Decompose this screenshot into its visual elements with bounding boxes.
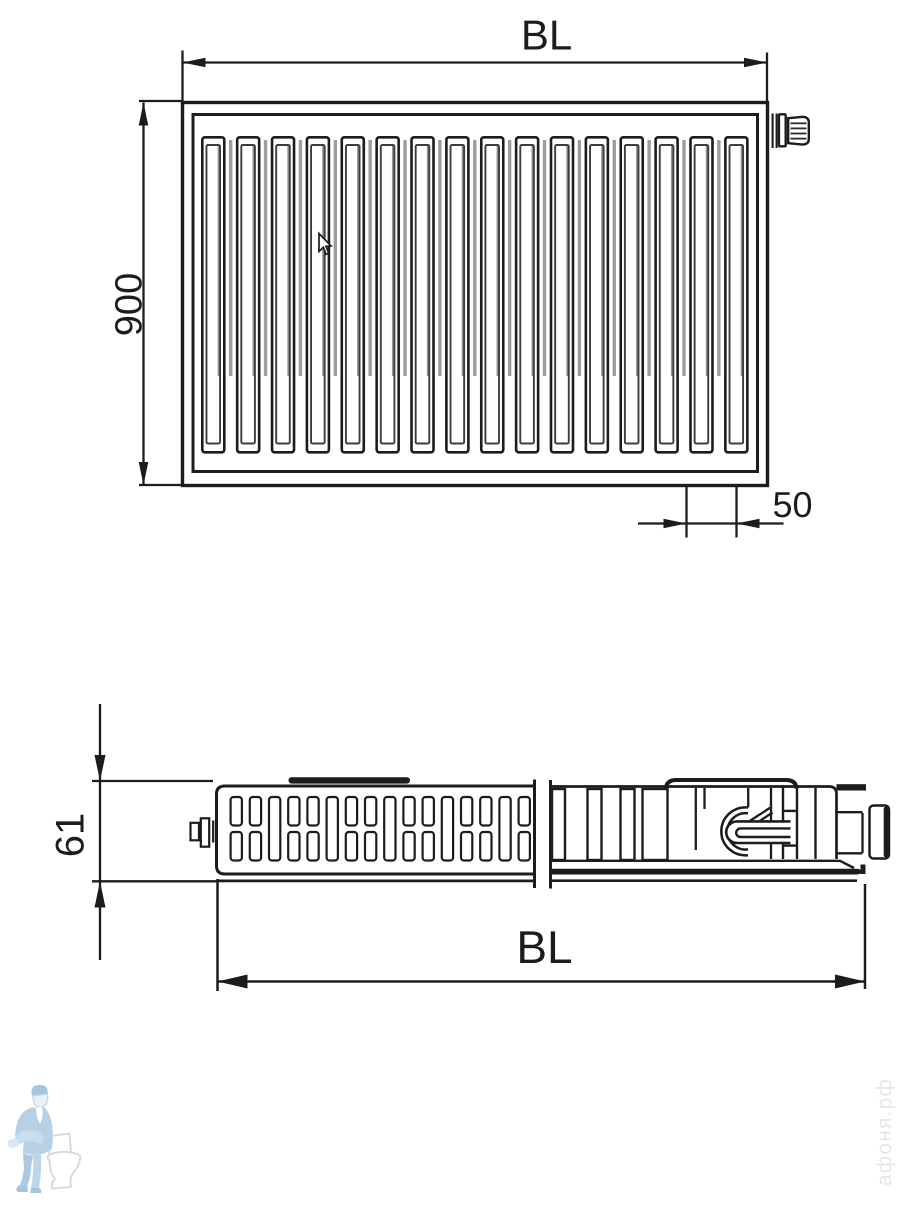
- svg-text:50: 50: [772, 484, 812, 525]
- svg-text:BL: BL: [521, 12, 572, 59]
- svg-text:BL: BL: [516, 921, 572, 973]
- svg-text:61: 61: [49, 813, 93, 858]
- svg-text:афоня.рф: афоня.рф: [873, 1078, 896, 1186]
